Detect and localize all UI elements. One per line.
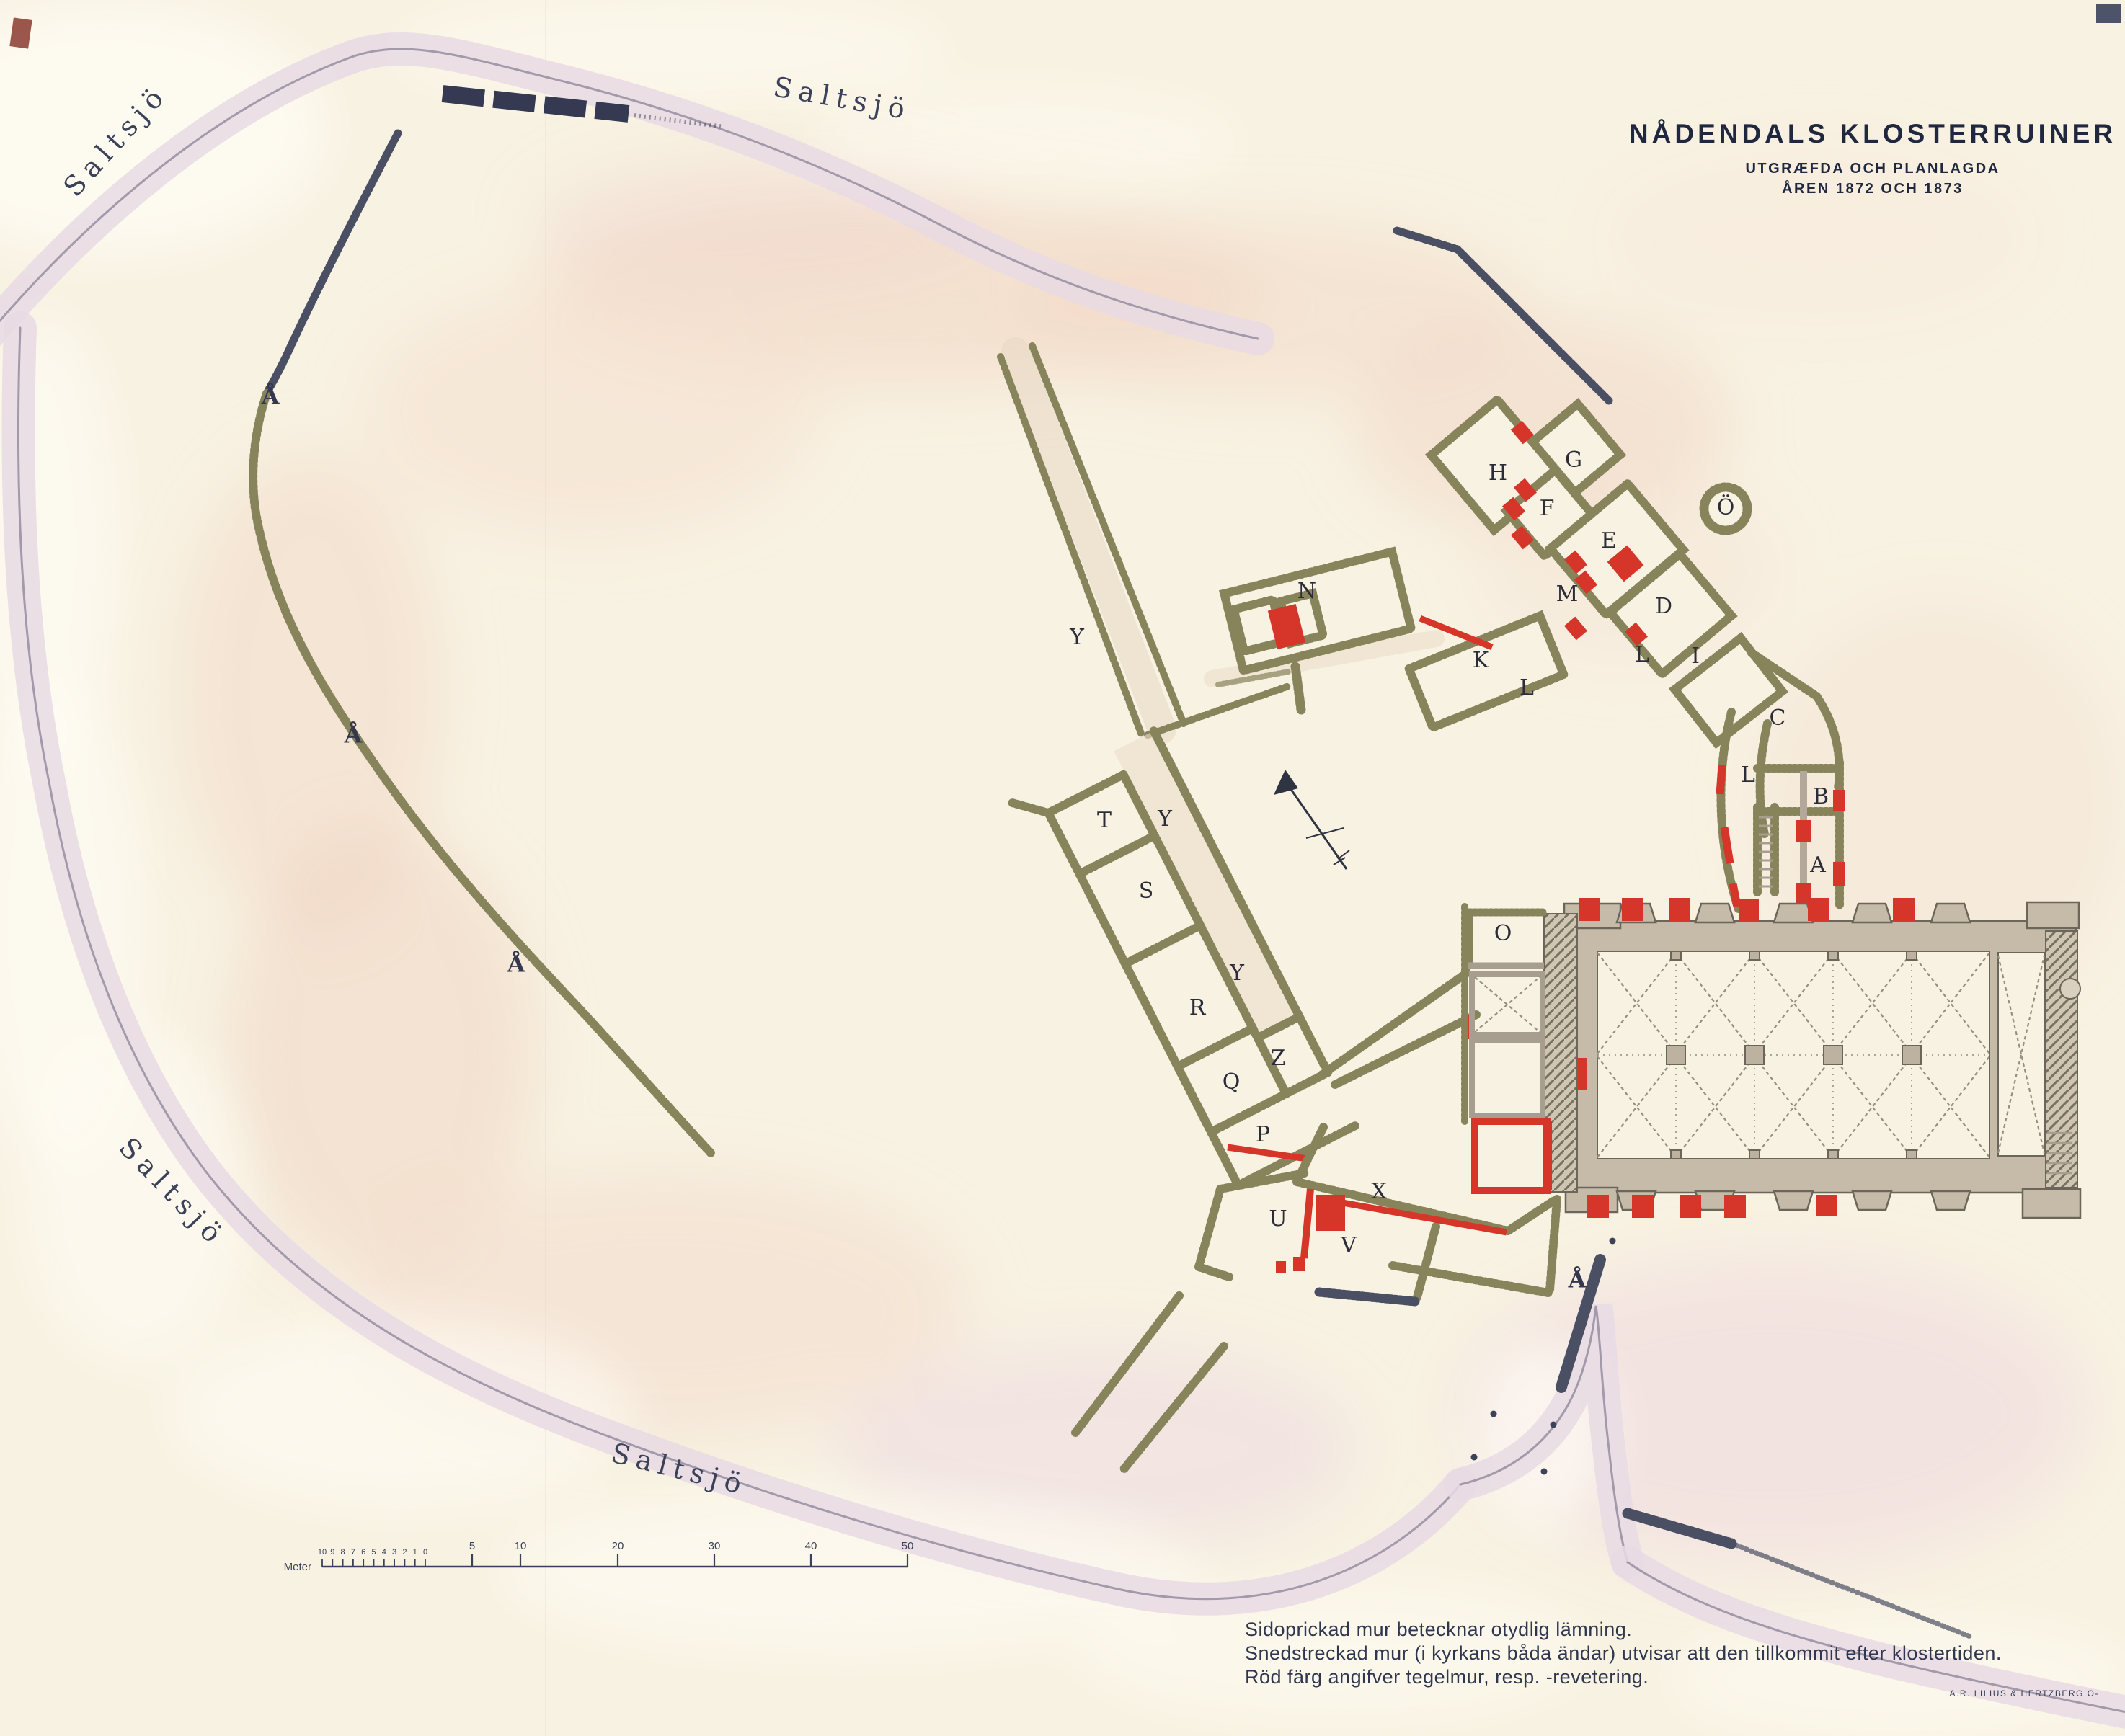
scan-artifact [2096, 4, 2121, 23]
printer-imprint: A.R. LILIUS & HERTZBERG O- [1950, 1688, 2099, 1699]
scalebar-fine-label: 7 [351, 1548, 355, 1557]
room-label-Ö: Ö [1717, 494, 1735, 520]
map-subtitle-1: UTGRÆFDA OCH PLANLAGDA [1745, 161, 2000, 177]
monastery-plan-svg: Meter 10987654321051020304050 SaltsjöSal… [0, 0, 2125, 1736]
scalebar-fine-label: 2 [402, 1548, 407, 1557]
stair-turret [2060, 979, 2080, 999]
wall-label: Å [507, 951, 526, 978]
legend-line-3: Röd färg angifver tegelmur, resp. -revet… [1245, 1666, 1649, 1688]
hatched-east-wall [2046, 931, 2077, 1188]
room-label-V: V [1340, 1233, 1357, 1258]
room-label-N: N [1297, 579, 1316, 604]
scalebar-unit: Meter [284, 1561, 311, 1573]
wall-label: Å [261, 383, 280, 410]
room-label-Y: Y [1157, 806, 1173, 832]
room-label-O: O [1494, 921, 1512, 946]
room-label-L: L [1635, 642, 1649, 667]
room-label-L: L [1520, 675, 1534, 700]
scan-artifact [9, 17, 32, 48]
scalebar-major-label: 10 [515, 1540, 527, 1552]
room-label-D: D [1655, 594, 1672, 619]
room-label-A: A [1809, 853, 1826, 878]
room-label-Y: Y [1069, 625, 1085, 650]
room-label-Z: Z [1271, 1046, 1286, 1071]
room-label-T: T [1097, 808, 1112, 833]
room-label-Q: Q [1223, 1069, 1241, 1095]
scalebar-major-label: 5 [469, 1540, 475, 1552]
scalebar-fine-label: 5 [371, 1548, 376, 1557]
scalebar-fine-label: 10 [318, 1548, 327, 1557]
legend-line-2: Snedstreckad mur (i kyrkans båda ändar) … [1245, 1642, 2002, 1664]
scalebar-fine-label: 6 [361, 1548, 365, 1557]
room-label-I: I [1691, 644, 1700, 669]
church [1463, 898, 2080, 1218]
map-sheet: Meter 10987654321051020304050 SaltsjöSal… [0, 0, 2125, 1736]
room-label-B: B [1813, 784, 1829, 809]
scalebar-fine-label: 1 [413, 1548, 417, 1557]
wall-label: Å [1568, 1266, 1587, 1294]
room-label-Y: Y [1229, 961, 1245, 986]
scalebar-major-label: 20 [612, 1540, 624, 1552]
scalebar-fine-label: 8 [341, 1548, 345, 1557]
room-label-L: L [1741, 762, 1755, 788]
map-subtitle-2: ÅREN 1872 OCH 1873 [1782, 179, 1964, 197]
room-label-K: K [1473, 648, 1489, 673]
scalebar-fine-label: 9 [330, 1548, 334, 1557]
room-label-P: P [1256, 1122, 1270, 1147]
scalebar-fine-label: 3 [392, 1548, 396, 1557]
room-label-M: M [1556, 582, 1579, 607]
map-title: NÅDENDALS KLOSTERRUINER [1629, 119, 2116, 148]
scalebar-fine-label: 4 [382, 1548, 386, 1557]
scalebar-major-label: 30 [709, 1540, 721, 1552]
scalebar-major-label: 50 [902, 1540, 914, 1552]
room-label-U: U [1269, 1206, 1287, 1232]
wall-label: Å [344, 721, 363, 749]
legend-line-1: Sidoprickad mur betecknar otydlig lämnin… [1245, 1619, 1632, 1640]
room-label-G: G [1565, 448, 1582, 473]
room-label-E: E [1601, 528, 1617, 553]
room-label-F: F [1540, 496, 1555, 521]
scalebar-fine-label: 0 [423, 1548, 427, 1557]
room-label-H: H [1489, 460, 1507, 486]
room-label-C: C [1770, 705, 1786, 731]
scalebar-major-label: 40 [805, 1540, 817, 1552]
room-label-S: S [1139, 878, 1154, 904]
room-label-X: X [1371, 1179, 1387, 1204]
room-label-R: R [1189, 995, 1207, 1020]
